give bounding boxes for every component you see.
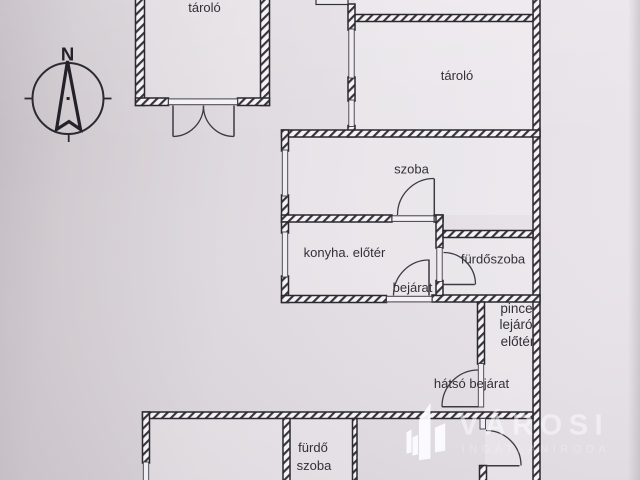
svg-text:bejárat: bejárat xyxy=(393,280,433,295)
svg-text:INGATLANIRODA: INGATLANIRODA xyxy=(462,444,611,456)
svg-text:szoba: szoba xyxy=(297,458,332,473)
svg-text:előtér: előtér xyxy=(501,334,535,349)
svg-text:tároló: tároló xyxy=(441,68,474,83)
svg-text:szoba: szoba xyxy=(394,162,429,177)
svg-text:tároló: tároló xyxy=(188,0,221,15)
svg-text:lejáró: lejáró xyxy=(499,317,532,332)
svg-text:konyha. előtér: konyha. előtér xyxy=(304,245,386,260)
svg-text:hátsó bejárat: hátsó bejárat xyxy=(434,376,510,391)
svg-text:pince: pince xyxy=(500,301,532,316)
svg-text:fürdő: fürdő xyxy=(298,440,328,455)
svg-text:fürdőszoba: fürdőszoba xyxy=(461,252,526,267)
svg-text:N: N xyxy=(61,44,74,65)
svg-text:VÁROSI: VÁROSI xyxy=(459,408,609,442)
